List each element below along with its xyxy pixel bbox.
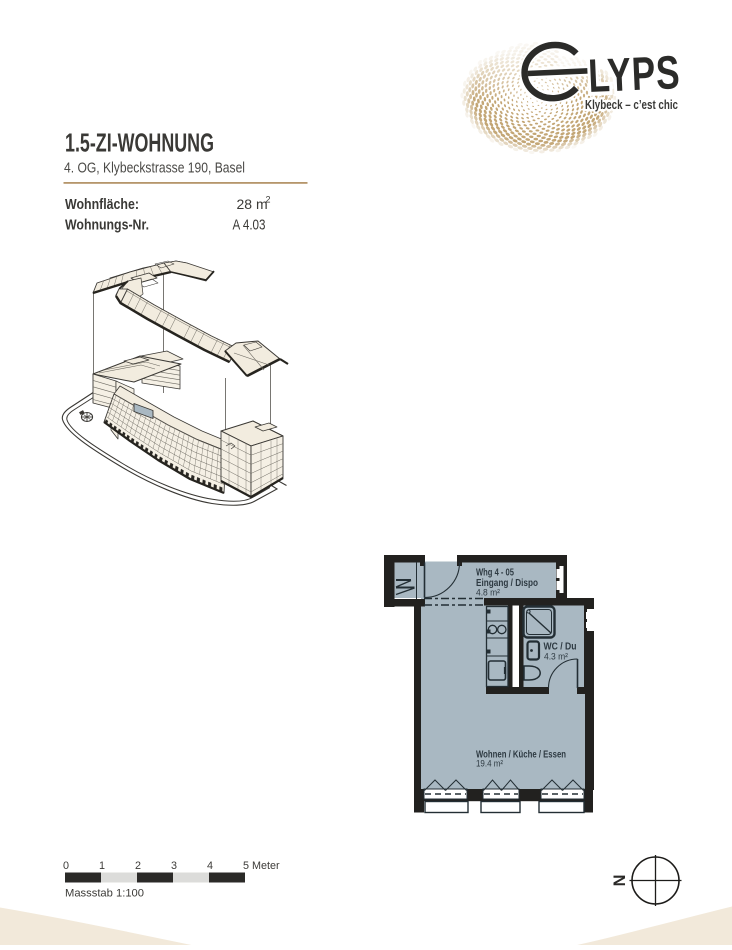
svg-text:Wohnfläche:: Wohnfläche: [65, 196, 139, 213]
svg-text:LYPS: LYPS [587, 45, 681, 102]
svg-text:19.4 m²: 19.4 m² [476, 759, 503, 769]
svg-text:A 4.03: A 4.03 [233, 217, 266, 234]
svg-text:1.5-ZI-WOHNUNG: 1.5-ZI-WOHNUNG [65, 130, 214, 158]
svg-text:Wohnungs-Nr.: Wohnungs-Nr. [65, 217, 149, 234]
svg-text:4: 4 [207, 860, 213, 872]
svg-text:5 Meter: 5 Meter [243, 860, 280, 872]
svg-text:Klybeck – c’est chic: Klybeck – c’est chic [585, 98, 678, 112]
svg-text:2: 2 [135, 860, 141, 872]
svg-text:4.8 m²: 4.8 m² [476, 588, 500, 598]
svg-text:Whg 4 - 05: Whg 4 - 05 [476, 568, 514, 579]
svg-text:4. OG, Klybeckstrasse 190, Bas: 4. OG, Klybeckstrasse 190, Basel [64, 161, 245, 177]
svg-text:N: N [610, 875, 628, 887]
svg-text:Massstab 1:100: Massstab 1:100 [65, 888, 144, 900]
svg-text:1: 1 [99, 860, 105, 872]
svg-text:0: 0 [63, 860, 69, 872]
svg-text:28 m: 28 m [237, 196, 268, 212]
svg-text:4.3 m²: 4.3 m² [544, 652, 568, 662]
svg-text:3: 3 [171, 860, 177, 872]
svg-text:2: 2 [266, 195, 271, 205]
